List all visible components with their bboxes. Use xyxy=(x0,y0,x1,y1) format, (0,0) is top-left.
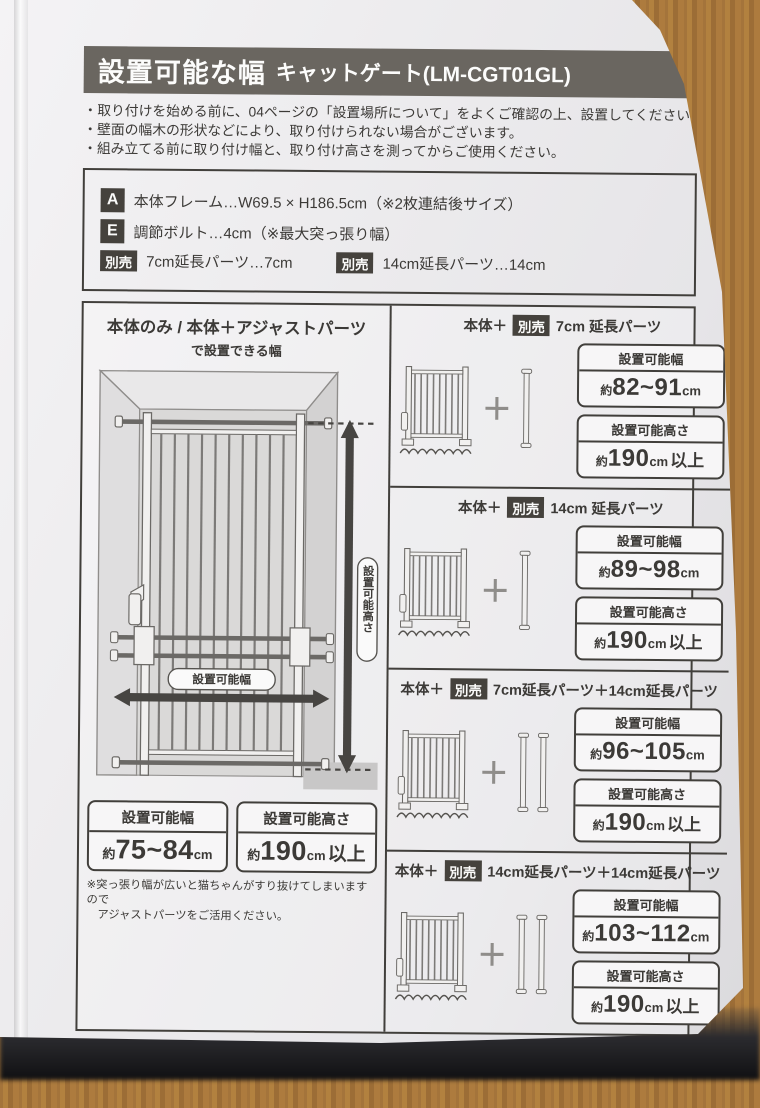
result-value: 約82~91cm xyxy=(578,371,722,406)
width-result-box: 設置可能幅 約96~105cm xyxy=(573,707,722,772)
approx-prefix: 約 xyxy=(599,566,611,580)
combo-title: 本体＋別売7cm 延長パーツ xyxy=(399,314,725,338)
min-suffix: 以上 xyxy=(668,633,702,652)
result-label: 設置可能幅 xyxy=(576,709,720,736)
result-value: 約190cm以上 xyxy=(576,624,720,659)
pole-group xyxy=(517,544,533,640)
combo-body: ＋ 設置可能幅 約89~98cm xyxy=(397,524,724,662)
approx-prefix: 約 xyxy=(247,847,260,862)
combo-body: ＋ xyxy=(393,888,720,1026)
main-unit-panel: 本体のみ / 本体＋アジャストパーツ で設置できる幅 xyxy=(77,303,391,1032)
height-arrow xyxy=(347,434,350,757)
unit: cm xyxy=(646,818,665,833)
pole-group xyxy=(514,908,550,1004)
result-value: 約190cm以上 xyxy=(238,833,375,871)
combo-name: 7cm延長パーツ＋14cm延長パーツ xyxy=(493,679,718,702)
height-value: 190 xyxy=(608,445,650,472)
width-result-box: 設置可能幅 約89~98cm xyxy=(575,525,724,590)
adjust-parts-footnote: ※突っ張り幅が広いと猫ちゃんがすり抜けてしまいますので アジャストパーツをご活用… xyxy=(86,878,376,926)
pole-group xyxy=(518,362,534,458)
spec-row-optional: 別売 7cm延長パーツ…7cm 別売 14cm延長パーツ…14cm xyxy=(100,250,678,276)
result-label: 設置可能高さ xyxy=(238,803,375,834)
combo-prefix: 本体＋ xyxy=(458,496,502,517)
width-result-box: 設置可能幅 約82~91cm xyxy=(576,343,725,408)
extension-pole-icon xyxy=(517,544,533,640)
extension-pole-icon xyxy=(535,726,551,822)
spec-row-frame: A 本体フレーム…W69.5 × H186.5cm（※2枚連結後サイズ） xyxy=(101,188,679,217)
part-e-badge: E xyxy=(100,219,124,243)
combo-results: 設置可能幅 約82~91cm 設置可能高さ 約190cm以上 xyxy=(576,343,725,479)
combo-prefix: 本体＋ xyxy=(395,860,439,881)
parts-spec-box: A 本体フレーム…W69.5 × H186.5cm（※2枚連結後サイズ） E 調… xyxy=(82,168,697,296)
combo-panel-7cm: 本体＋別売7cm 延長パーツ xyxy=(390,306,731,491)
width-value: 96~105 xyxy=(602,738,686,766)
extension-combos: 本体＋別売7cm 延長パーツ xyxy=(385,306,731,1035)
plus-icon: ＋ xyxy=(475,941,509,971)
height-result-box: 設置可能高さ 約190cm以上 xyxy=(571,960,720,1025)
approx-prefix: 約 xyxy=(591,1000,603,1014)
approx-prefix: 約 xyxy=(596,454,608,468)
combo-panel-7cm-14cm: 本体＋別売7cm延長パーツ＋14cm延長パーツ xyxy=(387,670,728,855)
intro-notes: ・取り付けを始める前に、04ページの「設置場所について」をよくご確認の上、設置し… xyxy=(83,101,697,163)
combo-panel-14cm-14cm: 本体＋別売14cm延長パーツ＋14cm延長パーツ xyxy=(385,852,726,1035)
spec-row-bolt: E 調節ボルト…4cm（※最大突っ張り幅） xyxy=(100,219,678,248)
width-arrow xyxy=(126,697,316,699)
sold-separately-badge: 別売 xyxy=(450,678,487,699)
unit: cm xyxy=(194,847,213,862)
combo-body: ＋ 設置可能幅 約82~91cm xyxy=(398,342,725,480)
width-result-box: 設置可能幅 約103~112cm xyxy=(572,889,721,954)
page-content: 設置可能な幅 キャットゲート(LM-CGT01GL) ・取り付けを始める前に、0… xyxy=(75,46,698,1107)
spec-text: 7cm延長パーツ…7cm xyxy=(146,251,293,273)
combo-title: 本体＋別売7cm延長パーツ＋14cm延長パーツ xyxy=(396,678,722,702)
approx-prefix: 約 xyxy=(600,384,612,398)
height-value: 190 xyxy=(606,627,648,654)
result-label: 設置可能幅 xyxy=(89,802,226,833)
optional-part-14cm: 別売 14cm延長パーツ…14cm xyxy=(336,252,545,275)
height-value: 190 xyxy=(603,991,645,1018)
height-result-box: 設置可能高さ 約190cm以上 xyxy=(576,414,725,479)
footnote-line: アジャストパーツをご活用ください。 xyxy=(86,908,376,926)
spec-text: 14cm延長パーツ…14cm xyxy=(382,253,545,275)
extension-pole-icon xyxy=(515,726,531,822)
result-label: 設置可能高さ xyxy=(577,598,721,625)
unit: cm xyxy=(307,848,326,863)
page-number: -05- xyxy=(75,1085,689,1107)
gate-icon xyxy=(395,724,472,823)
main-unit-subtitle: で設置できる幅 xyxy=(91,339,381,361)
plus-icon: ＋ xyxy=(477,759,511,789)
result-value: 約190cm以上 xyxy=(575,806,719,841)
combo-name: 14cm延長パーツ＋14cm延長パーツ xyxy=(487,861,720,884)
extension-pole-icon xyxy=(534,908,550,1004)
result-value: 約103~112cm xyxy=(574,917,718,952)
approx-prefix: 約 xyxy=(594,636,606,650)
product-model: キャットゲート(LM-CGT01GL) xyxy=(276,56,571,89)
gate-icon xyxy=(397,542,474,641)
combo-title: 本体＋別売14cm 延長パーツ xyxy=(398,496,724,520)
extension-pole-icon xyxy=(514,908,530,1004)
pole-group xyxy=(515,726,551,822)
page-title: 設置可能な幅 xyxy=(98,50,266,90)
optional-part-7cm: 別売 7cm延長パーツ…7cm xyxy=(100,250,293,273)
spec-text: 調節ボルト…4cm（※最大突っ張り幅） xyxy=(133,221,399,244)
manual-page: 設置可能な幅 キャットゲート(LM-CGT01GL) ・取り付けを始める前に、0… xyxy=(0,0,752,1048)
approx-prefix: 約 xyxy=(593,818,605,832)
combo-name: 7cm 延長パーツ xyxy=(556,315,661,337)
sold-separately-badge: 別売 xyxy=(100,250,137,271)
section-header: 設置可能な幅 キャットゲート(LM-CGT01GL) xyxy=(84,46,698,98)
combo-body: ＋ xyxy=(395,706,722,844)
combo-results: 設置可能幅 約89~98cm 設置可能高さ 約190cm以上 xyxy=(574,525,723,661)
sold-separately-badge: 別売 xyxy=(513,315,550,336)
approx-prefix: 約 xyxy=(590,747,602,761)
width-value: 82~91 xyxy=(612,374,682,402)
result-value: 約89~98cm xyxy=(577,553,721,588)
part-a-badge: A xyxy=(101,188,125,212)
result-value: 約190cm以上 xyxy=(578,442,722,477)
gate-icon xyxy=(398,360,475,459)
intro-note: ・組み立てる前に取り付け幅と、取り付け高さを測ってからご使用ください。 xyxy=(83,139,697,163)
unit: cm xyxy=(686,747,705,762)
min-suffix: 以上 xyxy=(665,997,699,1016)
main-unit-title: 本体のみ / 本体＋アジャストパーツ xyxy=(91,313,381,340)
combo-results: 設置可能幅 約96~105cm 設置可能高さ 約190cm以上 xyxy=(573,707,722,843)
height-result-box: 設置可能高さ 約190cm以上 xyxy=(236,801,378,873)
footnote-line: ※突っ張り幅が広いと猫ちゃんがすり抜けてしまいますので xyxy=(86,879,367,906)
unit: cm xyxy=(681,565,700,580)
height-result-box: 設置可能高さ 約190cm以上 xyxy=(574,596,723,661)
page-fold-edge xyxy=(14,0,28,1040)
height-value: 190 xyxy=(260,836,307,866)
width-value: 89~98 xyxy=(611,556,681,584)
sold-separately-badge: 別売 xyxy=(507,497,544,518)
combo-title: 本体＋別売14cm延長パーツ＋14cm延長パーツ xyxy=(395,860,721,884)
unit: cm xyxy=(645,1000,664,1015)
unit: cm xyxy=(691,929,710,944)
sold-separately-badge: 別売 xyxy=(444,860,481,881)
plus-icon: ＋ xyxy=(480,395,514,425)
doorway-gate-diagram: 設置可能幅 設置可能高さ xyxy=(87,362,381,797)
extension-pole-icon xyxy=(518,362,534,458)
plus-icon: ＋ xyxy=(478,577,512,607)
installation-width-grid: 本体のみ / 本体＋アジャストパーツ で設置できる幅 xyxy=(75,301,695,1036)
result-label: 設置可能幅 xyxy=(574,891,718,918)
width-value: 103~112 xyxy=(594,919,691,947)
height-value: 190 xyxy=(605,809,647,836)
result-value: 約75~84cm xyxy=(89,832,226,870)
result-label: 設置可能高さ xyxy=(578,416,722,443)
result-value: 約96~105cm xyxy=(575,735,719,770)
sold-separately-badge: 別売 xyxy=(336,252,373,273)
result-label: 設置可能高さ xyxy=(573,962,717,989)
unit: cm xyxy=(649,454,668,469)
width-result-box: 設置可能幅 約75~84cm xyxy=(87,800,229,872)
unit: cm xyxy=(648,636,667,651)
unit: cm xyxy=(682,383,701,398)
combo-prefix: 本体＋ xyxy=(400,678,444,699)
result-label: 設置可能幅 xyxy=(579,345,723,372)
result-label: 設置可能高さ xyxy=(575,780,719,807)
combo-prefix: 本体＋ xyxy=(463,314,507,335)
spec-text: 本体フレーム…W69.5 × H186.5cm（※2枚連結後サイズ） xyxy=(134,190,523,214)
height-result-box: 設置可能高さ 約190cm以上 xyxy=(573,778,722,843)
result-value: 約190cm以上 xyxy=(573,988,717,1023)
main-unit-results: 設置可能幅 約75~84cm 設置可能高さ 約190cm以上 xyxy=(87,800,378,874)
combo-name: 14cm 延長パーツ xyxy=(550,497,664,519)
gate-icon xyxy=(394,906,471,1005)
min-suffix: 以上 xyxy=(667,815,701,834)
result-label: 設置可能幅 xyxy=(577,527,721,554)
combo-panel-14cm: 本体＋別売14cm 延長パーツ xyxy=(389,488,730,673)
width-value: 75~84 xyxy=(115,834,194,865)
min-suffix: 以上 xyxy=(328,844,366,865)
diagram-height-label: 設置可能高さ xyxy=(361,564,374,634)
approx-prefix: 約 xyxy=(582,929,594,943)
combo-results: 設置可能幅 約103~112cm 設置可能高さ 約190cm以上 xyxy=(571,889,720,1025)
min-suffix: 以上 xyxy=(670,451,704,470)
diagram-width-label: 設置可能幅 xyxy=(192,672,251,687)
approx-prefix: 約 xyxy=(102,846,115,861)
